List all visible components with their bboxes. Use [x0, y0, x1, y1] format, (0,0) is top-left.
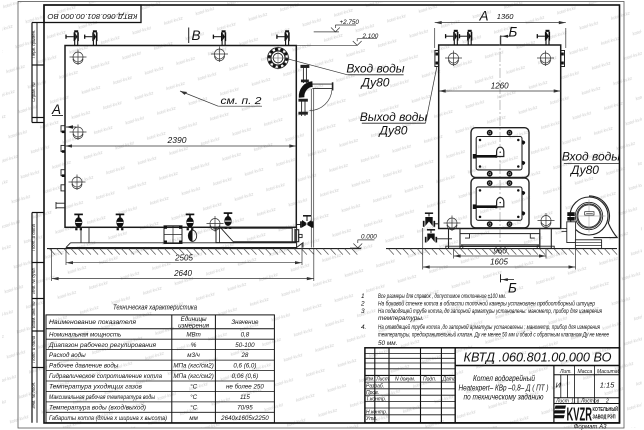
svg-text:Максимальная рабочая температу: Максимальная рабочая температура воды	[49, 394, 155, 401]
svg-text:Диапазон рабочего регулировани: Диапазон рабочего регулирования	[48, 342, 157, 349]
svg-text:2390: 2390	[167, 135, 187, 145]
svg-text:Ду80: Ду80	[378, 124, 408, 138]
svg-text:Разраб.: Разраб.	[366, 383, 384, 389]
svg-text:Котел водогрейный: Котел водогрейный	[473, 374, 536, 383]
svg-text:°С: °С	[190, 405, 197, 412]
svg-text:2505: 2505	[174, 253, 193, 262]
svg-text:температуры.: температуры.	[378, 315, 424, 322]
svg-text:50-100: 50-100	[235, 342, 255, 349]
svg-text:960: 960	[493, 247, 507, 256]
svg-text:МВт: МВт	[186, 331, 200, 338]
svg-text:Инв. № дубл.: Инв. № дубл.	[31, 267, 36, 293]
svg-text:2640: 2640	[173, 269, 192, 278]
svg-text:Рабочее давление воды: Рабочее давление воды	[49, 363, 119, 370]
svg-text:На отводящей трубе котла ,до з: На отводящей трубе котла ,до запорной ар…	[378, 323, 600, 331]
svg-text:28: 28	[240, 352, 248, 359]
svg-text:ЗАВОД РЭП: ЗАВОД РЭП	[593, 414, 616, 420]
svg-text:В: В	[192, 28, 201, 43]
svg-text:не более 250: не более 250	[226, 384, 264, 391]
svg-text:2: 2	[360, 301, 365, 308]
svg-text:Перв. примен.: Перв. примен.	[31, 30, 36, 59]
svg-text:0,06 (0,6): 0,06 (0,6)	[232, 373, 258, 380]
svg-text:Гидравлическое сопротивление к: Гидравлическое сопротивление котла	[49, 373, 163, 380]
svg-text:Т.контр.: Т.контр.	[366, 397, 386, 403]
svg-text:Вход воды: Вход воды	[562, 150, 620, 164]
svg-text:2640х1605х2250: 2640х1605х2250	[220, 415, 269, 422]
svg-text:И: И	[556, 381, 562, 390]
svg-text:измерения: измерения	[178, 322, 210, 329]
svg-text:1360: 1360	[497, 12, 515, 21]
svg-text:Н.контр.: Н.контр.	[366, 409, 387, 415]
svg-text:Наименование показателя: Наименование показателя	[49, 319, 137, 326]
svg-text:Инв. № подл.: Инв. № подл.	[31, 382, 36, 409]
svg-text:На подводящей трубе котла, д: На подводящей трубе котла, до запорной а…	[378, 307, 602, 315]
svg-text:А: А	[51, 102, 61, 117]
svg-text:Подп.: Подп.	[423, 377, 436, 383]
svg-text:Значение: Значение	[231, 319, 259, 326]
svg-text:КВТД .060.801.00.000 ВО: КВТД .060.801.00.000 ВО	[464, 350, 612, 365]
svg-text:KVZR: KVZR	[567, 403, 593, 424]
svg-text:0.000: 0.000	[361, 234, 377, 241]
svg-text:1:15: 1:15	[600, 381, 615, 390]
svg-text:°С: °С	[190, 384, 197, 391]
svg-text:Heatexpert– КВр –0,8– Д ( ПТ ): Heatexpert– КВр –0,8– Д ( ПТ )	[459, 383, 549, 392]
svg-text:Справ. №: Справ. №	[31, 82, 36, 102]
svg-text:2: 2	[605, 398, 609, 404]
svg-text:50 мм.: 50 мм.	[378, 340, 397, 347]
svg-text:см. п. 2: см. п. 2	[221, 95, 262, 107]
svg-text:КВТД.060.801.00.000 ВО: КВТД.060.801.00.000 ВО	[47, 12, 137, 21]
svg-text:%: %	[191, 342, 197, 349]
svg-text:2.100: 2.100	[362, 33, 379, 40]
svg-text:1260: 1260	[491, 81, 509, 90]
svg-text:КОТЕЛЬНЫЙ: КОТЕЛЬНЫЙ	[593, 405, 619, 413]
svg-text:Формат А3: Формат А3	[574, 425, 607, 430]
svg-text:МПа (кгс/см2): МПа (кгс/см2)	[173, 363, 213, 370]
svg-text:по техническому заданию: по техническому заданию	[464, 393, 544, 402]
svg-text:+2.750: +2.750	[340, 19, 360, 26]
svg-text:Лит.: Лит.	[559, 369, 572, 375]
svg-text:115: 115	[240, 394, 250, 401]
svg-text:Температура уходящих газов: Температура уходящих газов	[49, 384, 143, 391]
svg-text:Изм.: Изм.	[366, 377, 375, 383]
svg-text:Масштаб: Масштаб	[597, 369, 621, 375]
svg-text:0,6 (6,0): 0,6 (6,0)	[233, 363, 256, 370]
svg-text:Техническая характеристика: Техническая характеристика	[113, 303, 197, 312]
svg-text:Выход воды: Выход воды	[360, 110, 428, 124]
svg-text:N докум.: N докум.	[395, 377, 415, 383]
svg-text:1605: 1605	[490, 258, 508, 267]
svg-text:Температура воды (вход/выход): Температура воды (вход/выход)	[49, 405, 146, 412]
svg-text:Все размеры для справок , допу: Все размеры для справок , допустимое отк…	[378, 292, 506, 300]
svg-text:70/95: 70/95	[237, 405, 253, 412]
svg-text:Лист: Лист	[375, 377, 389, 383]
svg-text:Подп. и дата: Подп. и дата	[31, 335, 36, 363]
svg-text:Вход воды: Вход воды	[346, 62, 404, 76]
svg-text:°С: °С	[190, 394, 197, 401]
svg-text:Номинальная мощность: Номинальная мощность	[49, 331, 121, 338]
svg-text:На боковой стенке котла в обла: На боковой стенке котла в области топочн…	[378, 300, 595, 308]
svg-text:3: 3	[361, 308, 365, 315]
svg-text:Дата: Дата	[442, 377, 456, 383]
svg-text:1: 1	[361, 293, 365, 300]
svg-text:МПа (кгс/см2): МПа (кгс/см2)	[173, 373, 213, 380]
svg-text:мм: мм	[189, 415, 198, 422]
svg-text:0,8: 0,8	[241, 331, 250, 338]
svg-text:Подп. и дата: Подп. и дата	[31, 223, 36, 251]
svg-text:Утв.: Утв.	[366, 416, 377, 422]
svg-text:Расход воды: Расход воды	[49, 352, 86, 359]
svg-text:4.: 4.	[361, 324, 366, 331]
svg-text:Габариты котла (длина х ширина: Габариты котла (длина х ширина х высота)	[49, 415, 167, 422]
svg-text:м3/ч: м3/ч	[187, 352, 200, 359]
svg-text:температуры, предохранительный: температуры, предохранительный клапан. Д…	[378, 331, 609, 339]
svg-text:Б: Б	[509, 25, 518, 40]
svg-text:Ду80: Ду80	[569, 163, 599, 177]
svg-text:Б: Б	[508, 281, 517, 296]
svg-text:Масса: Масса	[578, 369, 593, 375]
svg-text:Взам. инв. №: Взам. инв. №	[31, 301, 36, 328]
svg-text:А: А	[479, 9, 489, 24]
svg-text:Ду80: Ду80	[360, 76, 390, 90]
svg-text:Пров.: Пров.	[366, 390, 379, 396]
